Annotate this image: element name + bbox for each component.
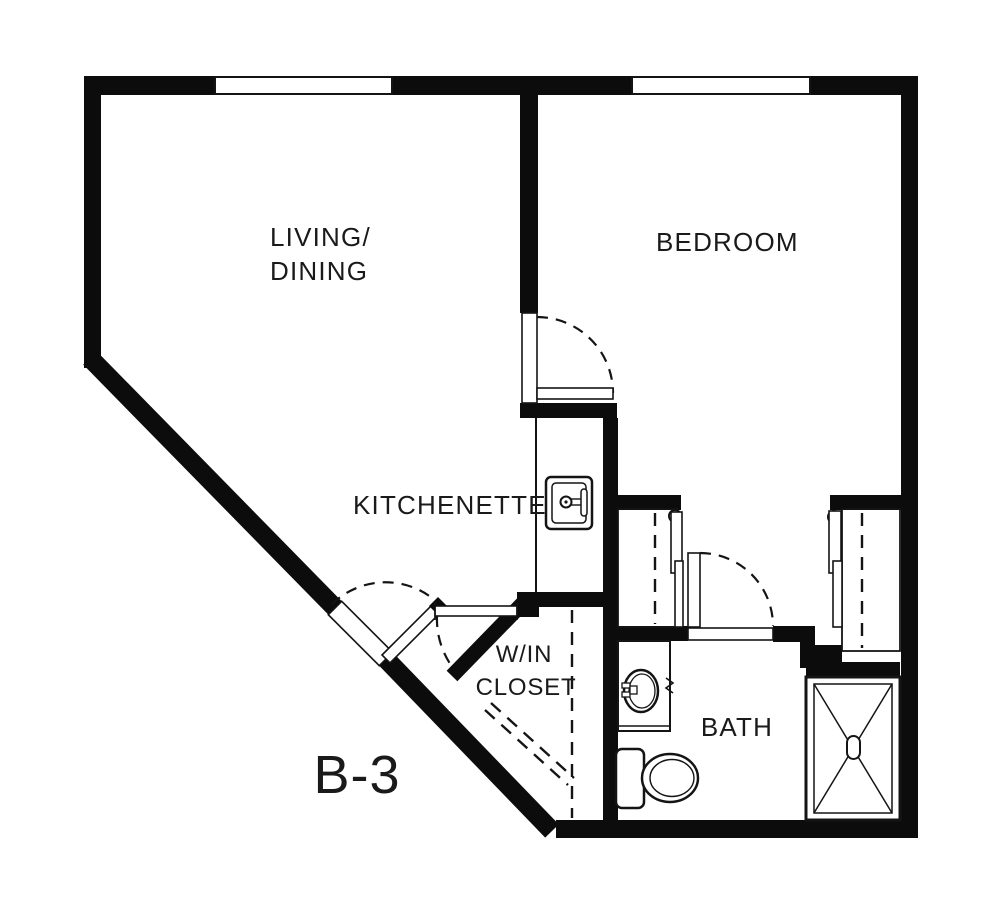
left-closet-panel-2	[675, 561, 683, 627]
left-closet-box	[618, 509, 677, 627]
right-closet-box	[842, 509, 900, 651]
wall-right	[901, 76, 918, 838]
bath-label: BATH	[701, 712, 773, 742]
walk-in-closet-label-line2: CLOSET	[476, 674, 577, 701]
kitchenette-sink-icon	[546, 477, 592, 529]
bedroom-door-frame	[522, 313, 537, 403]
bathroom-door-swing-arc	[700, 553, 773, 626]
floor-plan: LIVING/ DINING BEDROOM KITCHENETTE W/IN …	[0, 0, 1000, 912]
toilet-seat	[650, 760, 694, 797]
entry-door-swing-arc	[332, 582, 440, 605]
unit-label: B-3	[313, 745, 400, 805]
closet-door-swing-arc	[437, 616, 453, 668]
bathroom-door-leaf	[688, 553, 700, 627]
wall-left-closet-top	[617, 495, 681, 510]
wall-diagonal-upper	[90, 358, 339, 612]
bedroom-door-swing-arc	[537, 317, 613, 393]
living-dining-label-line2: DINING	[270, 256, 368, 286]
toilet-icon	[616, 749, 698, 808]
wall-living-bedroom-divider	[520, 95, 538, 313]
wall-right-closet-top	[830, 495, 901, 510]
kitchen-sink-drain-dot	[564, 500, 567, 503]
kitchen-sink-faucet-handle	[581, 489, 587, 516]
shower-drain	[847, 736, 860, 759]
left-closet	[618, 509, 683, 627]
bath-faucet-handle-2	[622, 692, 630, 697]
wall-bath-top-right	[773, 626, 815, 642]
right-closet	[828, 509, 900, 651]
entry-door	[328, 582, 447, 665]
floor-plan-drawing: LIVING/ DINING BEDROOM KITCHENETTE W/IN …	[0, 0, 1000, 912]
bedroom-door	[522, 313, 613, 403]
bathroom-sink-icon	[618, 641, 673, 731]
right-closet-panel-2	[833, 561, 842, 627]
wall-bath-top-left	[603, 626, 688, 641]
bedroom-door-leaf	[537, 388, 613, 399]
bath-faucet-handle-1	[622, 683, 630, 688]
wall-left	[84, 76, 101, 368]
bedroom-label: BEDROOM	[656, 227, 799, 257]
toilet-tank	[616, 749, 644, 808]
bathroom-door	[688, 553, 773, 640]
window-living	[215, 77, 392, 94]
closet-rod-line-2	[491, 703, 574, 778]
wall-right-closet-bottom	[813, 645, 842, 662]
walls	[84, 76, 918, 838]
living-dining-label-line1: LIVING/	[270, 222, 371, 252]
kitchenette-label: KITCHENETTE	[353, 490, 547, 520]
bath-faucet-spout	[630, 686, 637, 694]
window-bedroom	[632, 77, 810, 94]
wall-shower-top	[806, 662, 900, 677]
shower-icon	[806, 677, 900, 820]
wall-below-bedroom-door	[520, 403, 617, 418]
closet-door-leaf-open	[435, 606, 517, 616]
bathroom-door-threshold	[688, 628, 773, 640]
walk-in-closet-label-line1: W/IN	[496, 641, 553, 668]
